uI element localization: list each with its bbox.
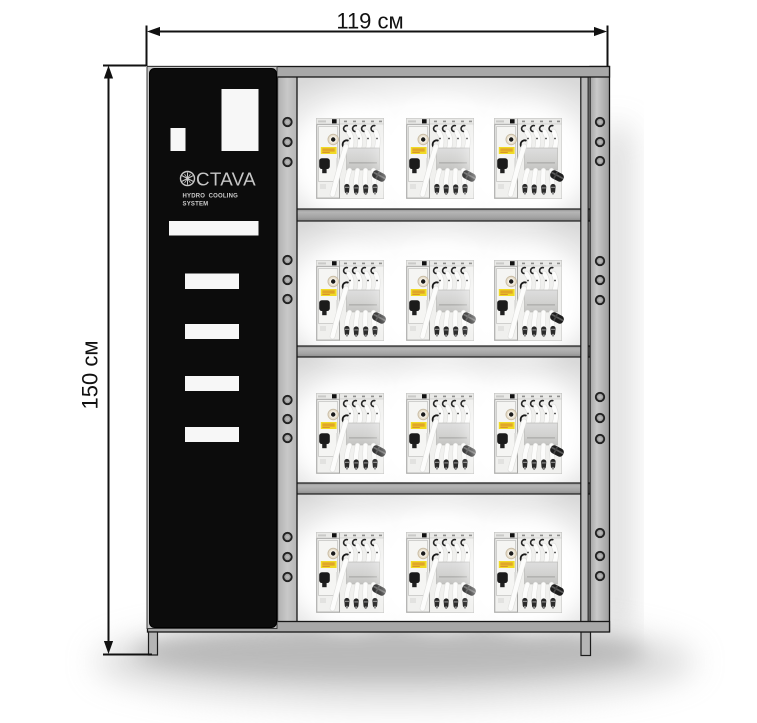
svg-text:150 см: 150 см xyxy=(78,341,103,410)
svg-text:SYSTEM: SYSTEM xyxy=(183,202,209,208)
svg-text:CTAVA: CTAVA xyxy=(196,169,256,190)
svg-text:119 см: 119 см xyxy=(336,9,403,34)
svg-text:HYDRO COOLING: HYDRO COOLING xyxy=(183,194,239,200)
